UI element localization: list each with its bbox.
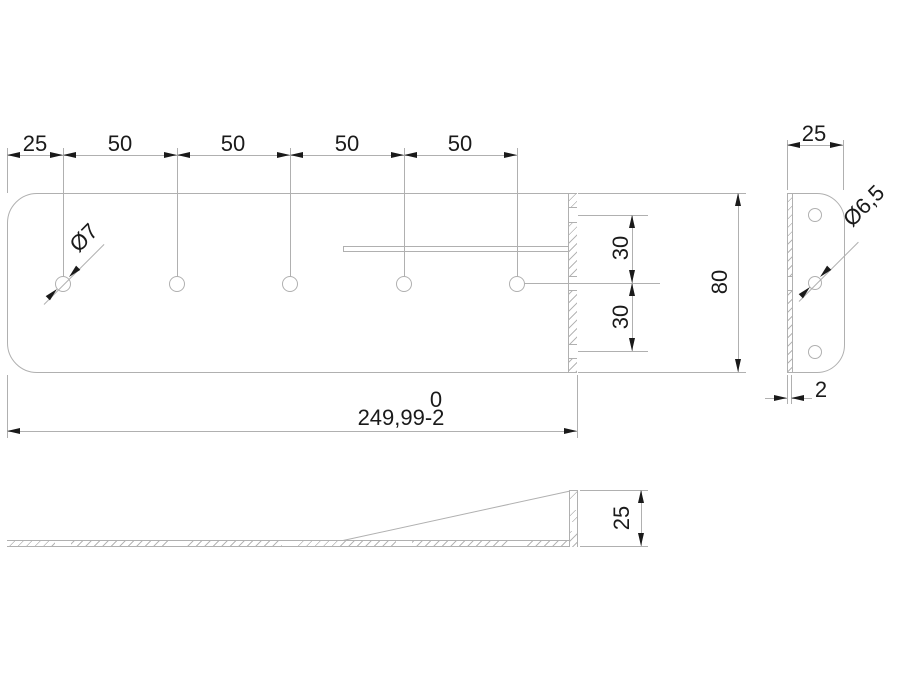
section-hole-break (396, 541, 412, 546)
arrowhead (638, 490, 644, 503)
hole (396, 276, 412, 292)
extension-line (578, 215, 648, 216)
section-hole-break (55, 541, 71, 546)
dim-label-flange-width: 25 (802, 123, 826, 145)
arrowhead (177, 152, 190, 158)
dim-label-hole-spacing: 30 (610, 236, 632, 260)
arrowhead (164, 152, 177, 158)
section-hole-break (509, 541, 525, 546)
arrowhead (735, 359, 741, 372)
extension-line (517, 148, 518, 277)
plate-edge-line (792, 193, 793, 373)
dim-line-length (7, 431, 578, 432)
arrowhead (830, 142, 843, 148)
section-hole-break (169, 541, 185, 546)
arrowhead (391, 152, 404, 158)
arrowhead (7, 152, 20, 158)
hole (509, 276, 525, 292)
dim-label-length: 249,99-2 (358, 407, 445, 429)
hole (282, 276, 298, 292)
arrowhead (7, 428, 20, 434)
dim-line-height (738, 193, 739, 373)
arrowhead (50, 152, 63, 158)
extension-line (404, 148, 405, 277)
arrowhead (63, 152, 76, 158)
arrowhead (504, 152, 517, 158)
flange-hole-break (568, 207, 577, 223)
dim-line-pitch (7, 155, 518, 156)
hole (808, 345, 822, 359)
flange-hole-break (568, 344, 577, 359)
dim-label-pitch: 50 (448, 133, 472, 155)
extension-line (177, 148, 178, 277)
arrowhead (629, 283, 635, 296)
extension-line (843, 140, 844, 190)
dim-label-height: 80 (709, 270, 731, 294)
hole (808, 208, 822, 222)
gusset-edge (343, 246, 569, 252)
arrowhead (629, 215, 635, 228)
section-hole-break (570, 500, 577, 510)
arrowhead (404, 152, 417, 158)
extension-line (63, 148, 64, 277)
dim-label-edge-offset: 25 (23, 133, 47, 155)
dim-label-hole-spacing: 30 (610, 305, 632, 329)
hole-diameter-callout: Ø6,5 (839, 181, 888, 230)
extension-line (578, 351, 648, 352)
arrowhead (290, 152, 303, 158)
gusset-diagonal-line (343, 491, 570, 541)
arrowhead (629, 270, 635, 283)
extension-line (578, 193, 746, 194)
dim-label-pitch: 50 (108, 133, 132, 155)
flange-section (569, 490, 578, 547)
extension-line (578, 372, 746, 373)
arrowhead (787, 142, 800, 148)
hole (169, 276, 185, 292)
extension-line (580, 546, 648, 547)
technical-drawing: 25 50 50 50 50 Ø7 30 30 80 0 249,99-2 25… (0, 0, 900, 675)
dim-label-pitch: 50 (221, 133, 245, 155)
arrowhead (638, 533, 644, 546)
section-hole-break (570, 522, 577, 531)
arrowhead (629, 338, 635, 351)
arrowhead (774, 395, 787, 401)
arrowhead (277, 152, 290, 158)
hole-center-line (517, 283, 660, 284)
arrowhead (735, 193, 741, 206)
arrowhead (564, 428, 577, 434)
extension-line (290, 148, 291, 277)
extension-line (787, 375, 788, 404)
section-hole-break (282, 541, 298, 546)
arrowhead (791, 395, 804, 401)
extension-line (577, 375, 578, 438)
dim-label-flange-height: 25 (611, 506, 633, 530)
dim-label-pitch: 50 (335, 133, 359, 155)
dim-label-thickness: 2 (815, 379, 827, 401)
